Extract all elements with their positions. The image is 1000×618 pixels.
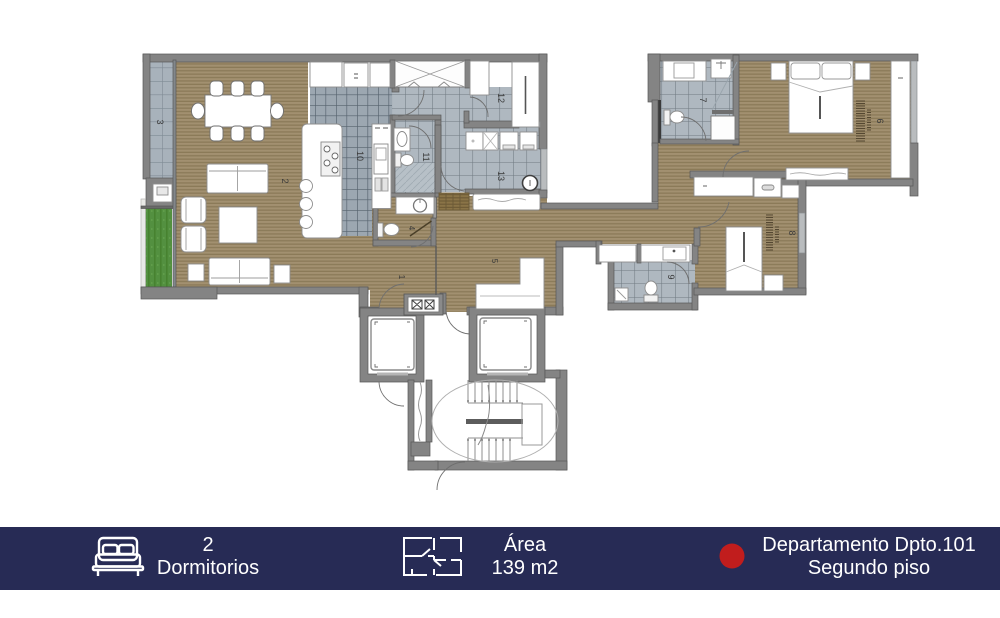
svg-text:9: 9 [666,274,676,279]
svg-text:1: 1 [397,275,406,280]
svg-text:7: 7 [698,97,708,102]
svg-text:5: 5 [490,259,499,264]
svg-text:12: 12 [496,93,506,103]
svg-text:139 m2: 139 m2 [492,557,559,579]
svg-text:2: 2 [280,178,290,183]
svg-text:Segundo piso: Segundo piso [808,557,930,579]
svg-text:10: 10 [355,151,365,161]
svg-text:13: 13 [496,171,506,181]
svg-text:Área: Área [504,533,547,556]
svg-text:6: 6 [875,118,885,123]
svg-text:Dormitorios: Dormitorios [157,557,259,579]
svg-text:4: 4 [407,226,416,231]
svg-text:3: 3 [155,119,165,124]
svg-text:11: 11 [421,152,431,161]
svg-text:2: 2 [202,534,213,556]
svg-text:8: 8 [787,230,797,235]
svg-text:Departamento Dpto.101: Departamento Dpto.101 [762,534,975,556]
